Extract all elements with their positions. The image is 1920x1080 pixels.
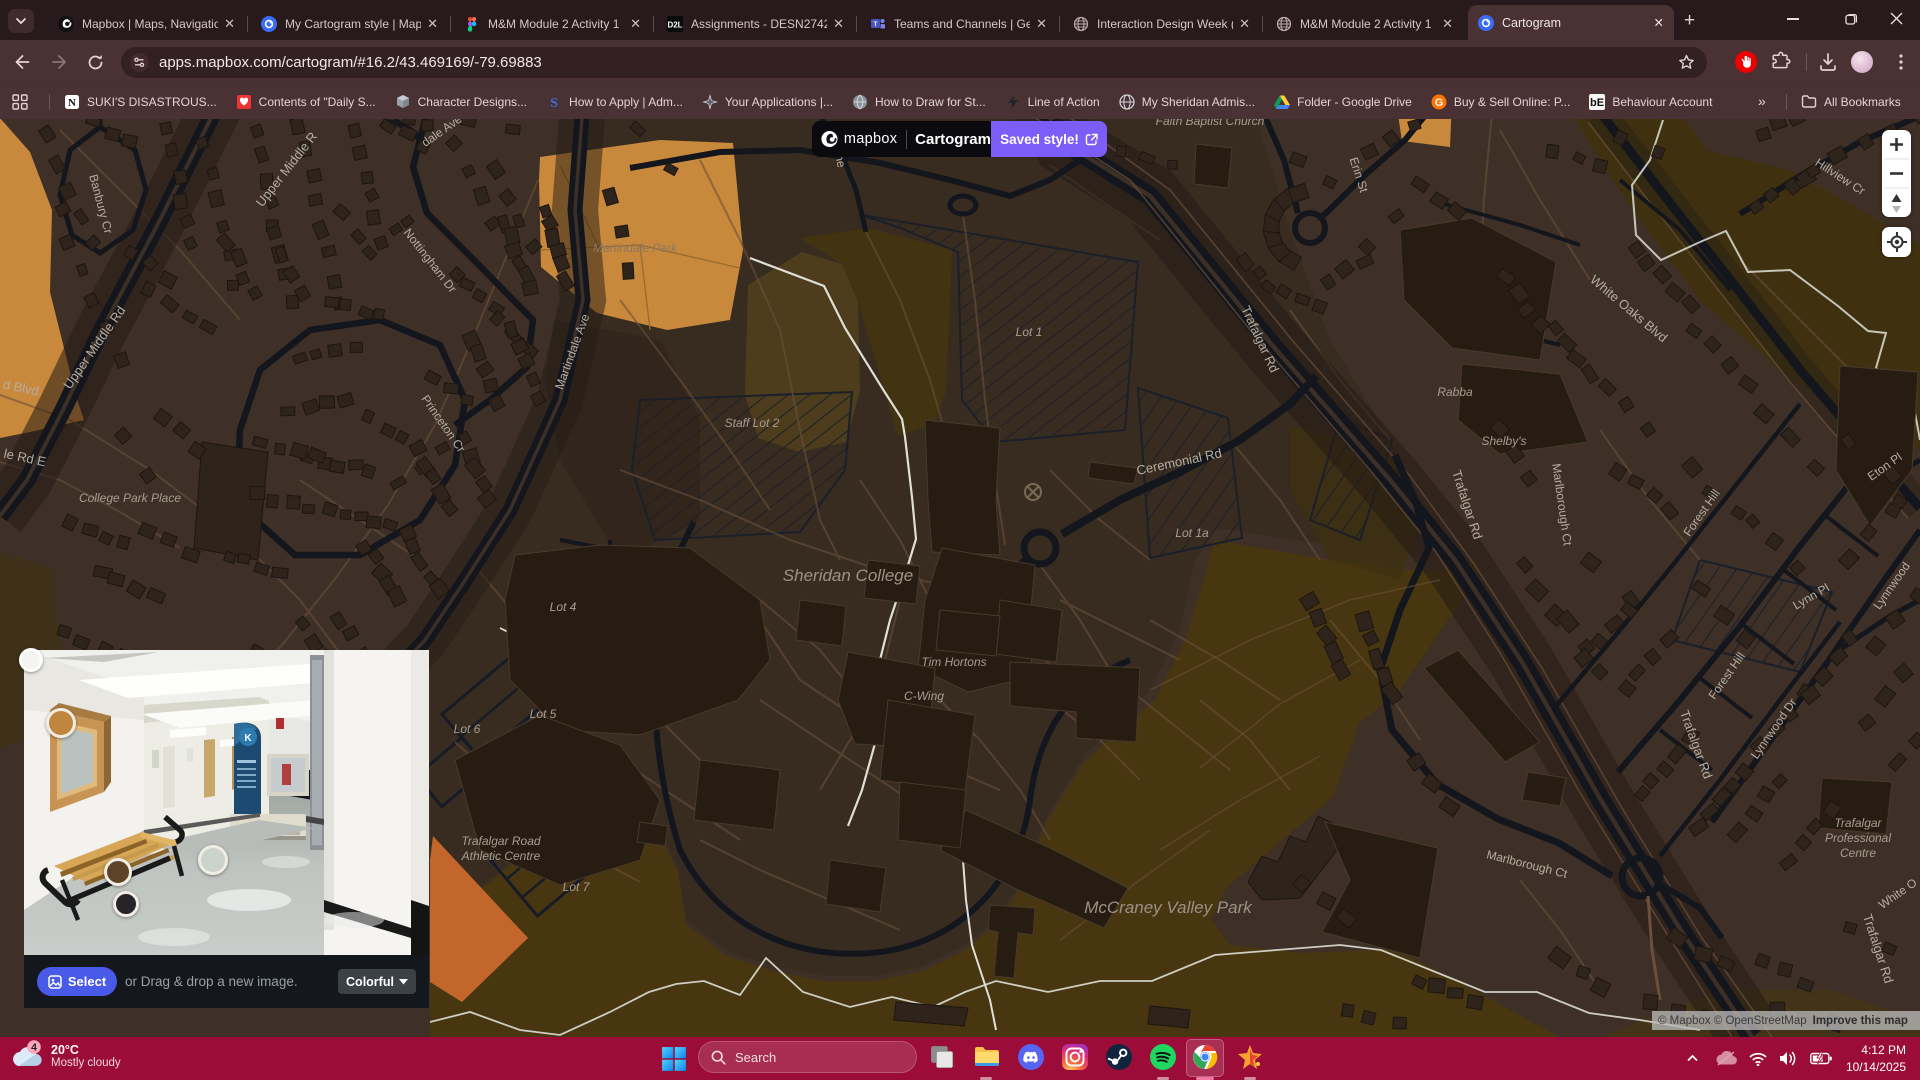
- svg-text:bE: bE: [1590, 97, 1604, 109]
- svg-text:Centre: Centre: [1840, 846, 1876, 860]
- svg-text:4: 4: [31, 1042, 37, 1054]
- svg-text:Rabba: Rabba: [1437, 385, 1473, 399]
- svg-text:McCraney Valley Park: McCraney Valley Park: [1084, 898, 1253, 917]
- svg-text:K: K: [244, 733, 252, 744]
- svg-text:Athletic Centre: Athletic Centre: [461, 849, 541, 863]
- svg-text:Tim Hortons: Tim Hortons: [921, 655, 986, 669]
- svg-text:G: G: [1435, 97, 1444, 109]
- svg-text:T: T: [874, 21, 878, 28]
- svg-text:D2L: D2L: [667, 21, 682, 30]
- svg-text:Lot 1: Lot 1: [1016, 325, 1043, 339]
- svg-text:Faith Baptist Church: Faith Baptist Church: [1156, 119, 1265, 128]
- svg-text:Trafalgar Road: Trafalgar Road: [461, 834, 540, 848]
- svg-text:Lot 4: Lot 4: [550, 600, 577, 614]
- svg-text:College Park Place: College Park Place: [79, 491, 181, 505]
- svg-text:Lot 7: Lot 7: [563, 880, 591, 894]
- svg-text:C-Wing: C-Wing: [904, 689, 944, 703]
- svg-text:Professional: Professional: [1825, 831, 1891, 845]
- svg-text:Shelby's: Shelby's: [1482, 434, 1527, 448]
- svg-text:N: N: [68, 97, 76, 109]
- svg-text:Trafalgar: Trafalgar: [1834, 816, 1882, 830]
- svg-text:S: S: [550, 96, 558, 110]
- svg-text:Martindale Park: Martindale Park: [593, 241, 678, 255]
- svg-text:Sheridan College: Sheridan College: [783, 566, 913, 585]
- svg-text:Staff Lot 2: Staff Lot 2: [725, 416, 780, 430]
- svg-text:Lot 5: Lot 5: [530, 707, 557, 721]
- svg-text:Lot 1a: Lot 1a: [1175, 526, 1209, 540]
- svg-text:Lot 6: Lot 6: [454, 722, 481, 736]
